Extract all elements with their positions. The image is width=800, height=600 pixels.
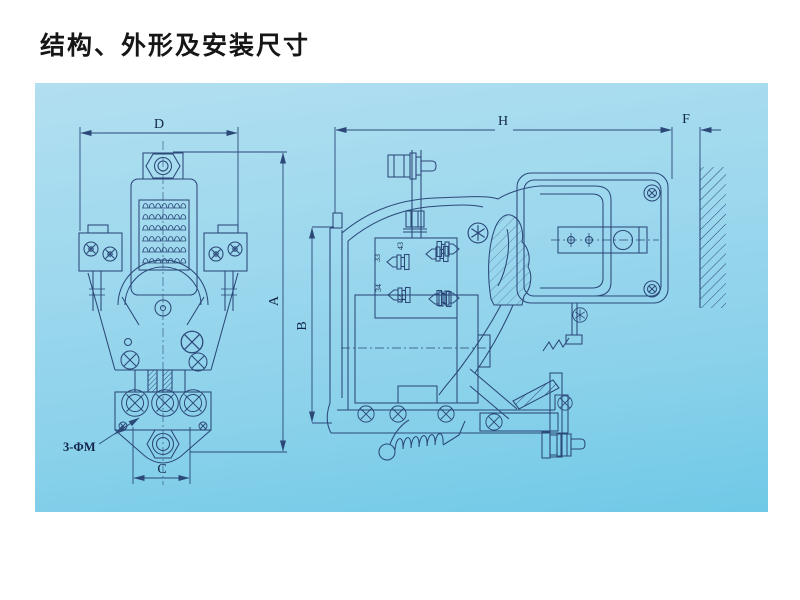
dimension-f [651, 127, 721, 167]
technical-drawing: D A C 3-ΦM [35, 83, 768, 512]
wall-section [700, 167, 726, 308]
dimension-b [312, 227, 334, 423]
dim-label-f: F [682, 112, 690, 127]
front-view [79, 141, 247, 485]
aux-terminal-label-33: 33 [373, 254, 382, 262]
dim-label-d: D [154, 117, 164, 132]
aux-terminal-label-34: 34 [374, 284, 383, 292]
slide-page: 结构、外形及安装尺寸 [0, 0, 800, 600]
dim-label-b: B [295, 321, 310, 330]
page-title: 结构、外形及安装尺寸 [40, 26, 310, 62]
arc-chute [131, 179, 197, 295]
aux-terminal-label-43: 43 [396, 242, 405, 250]
dim-label-c: C [157, 462, 166, 477]
magnet-assembly [88, 260, 238, 371]
dim-label-a: A [267, 295, 282, 306]
plate-hanger-parts [543, 303, 587, 351]
aux-contact-block [375, 238, 459, 318]
side-view [327, 150, 726, 460]
mounting-plate [517, 173, 668, 303]
aux-terminal-label-44: 44 [397, 294, 406, 302]
top-terminal-bolt [388, 150, 436, 238]
dimension-h [335, 127, 672, 213]
return-spring [379, 420, 465, 460]
drawing-panel: D A C 3-ΦM [35, 83, 768, 512]
dim-label-h: H [498, 114, 508, 129]
mounting-holes-label: 3-ΦM [63, 440, 96, 454]
